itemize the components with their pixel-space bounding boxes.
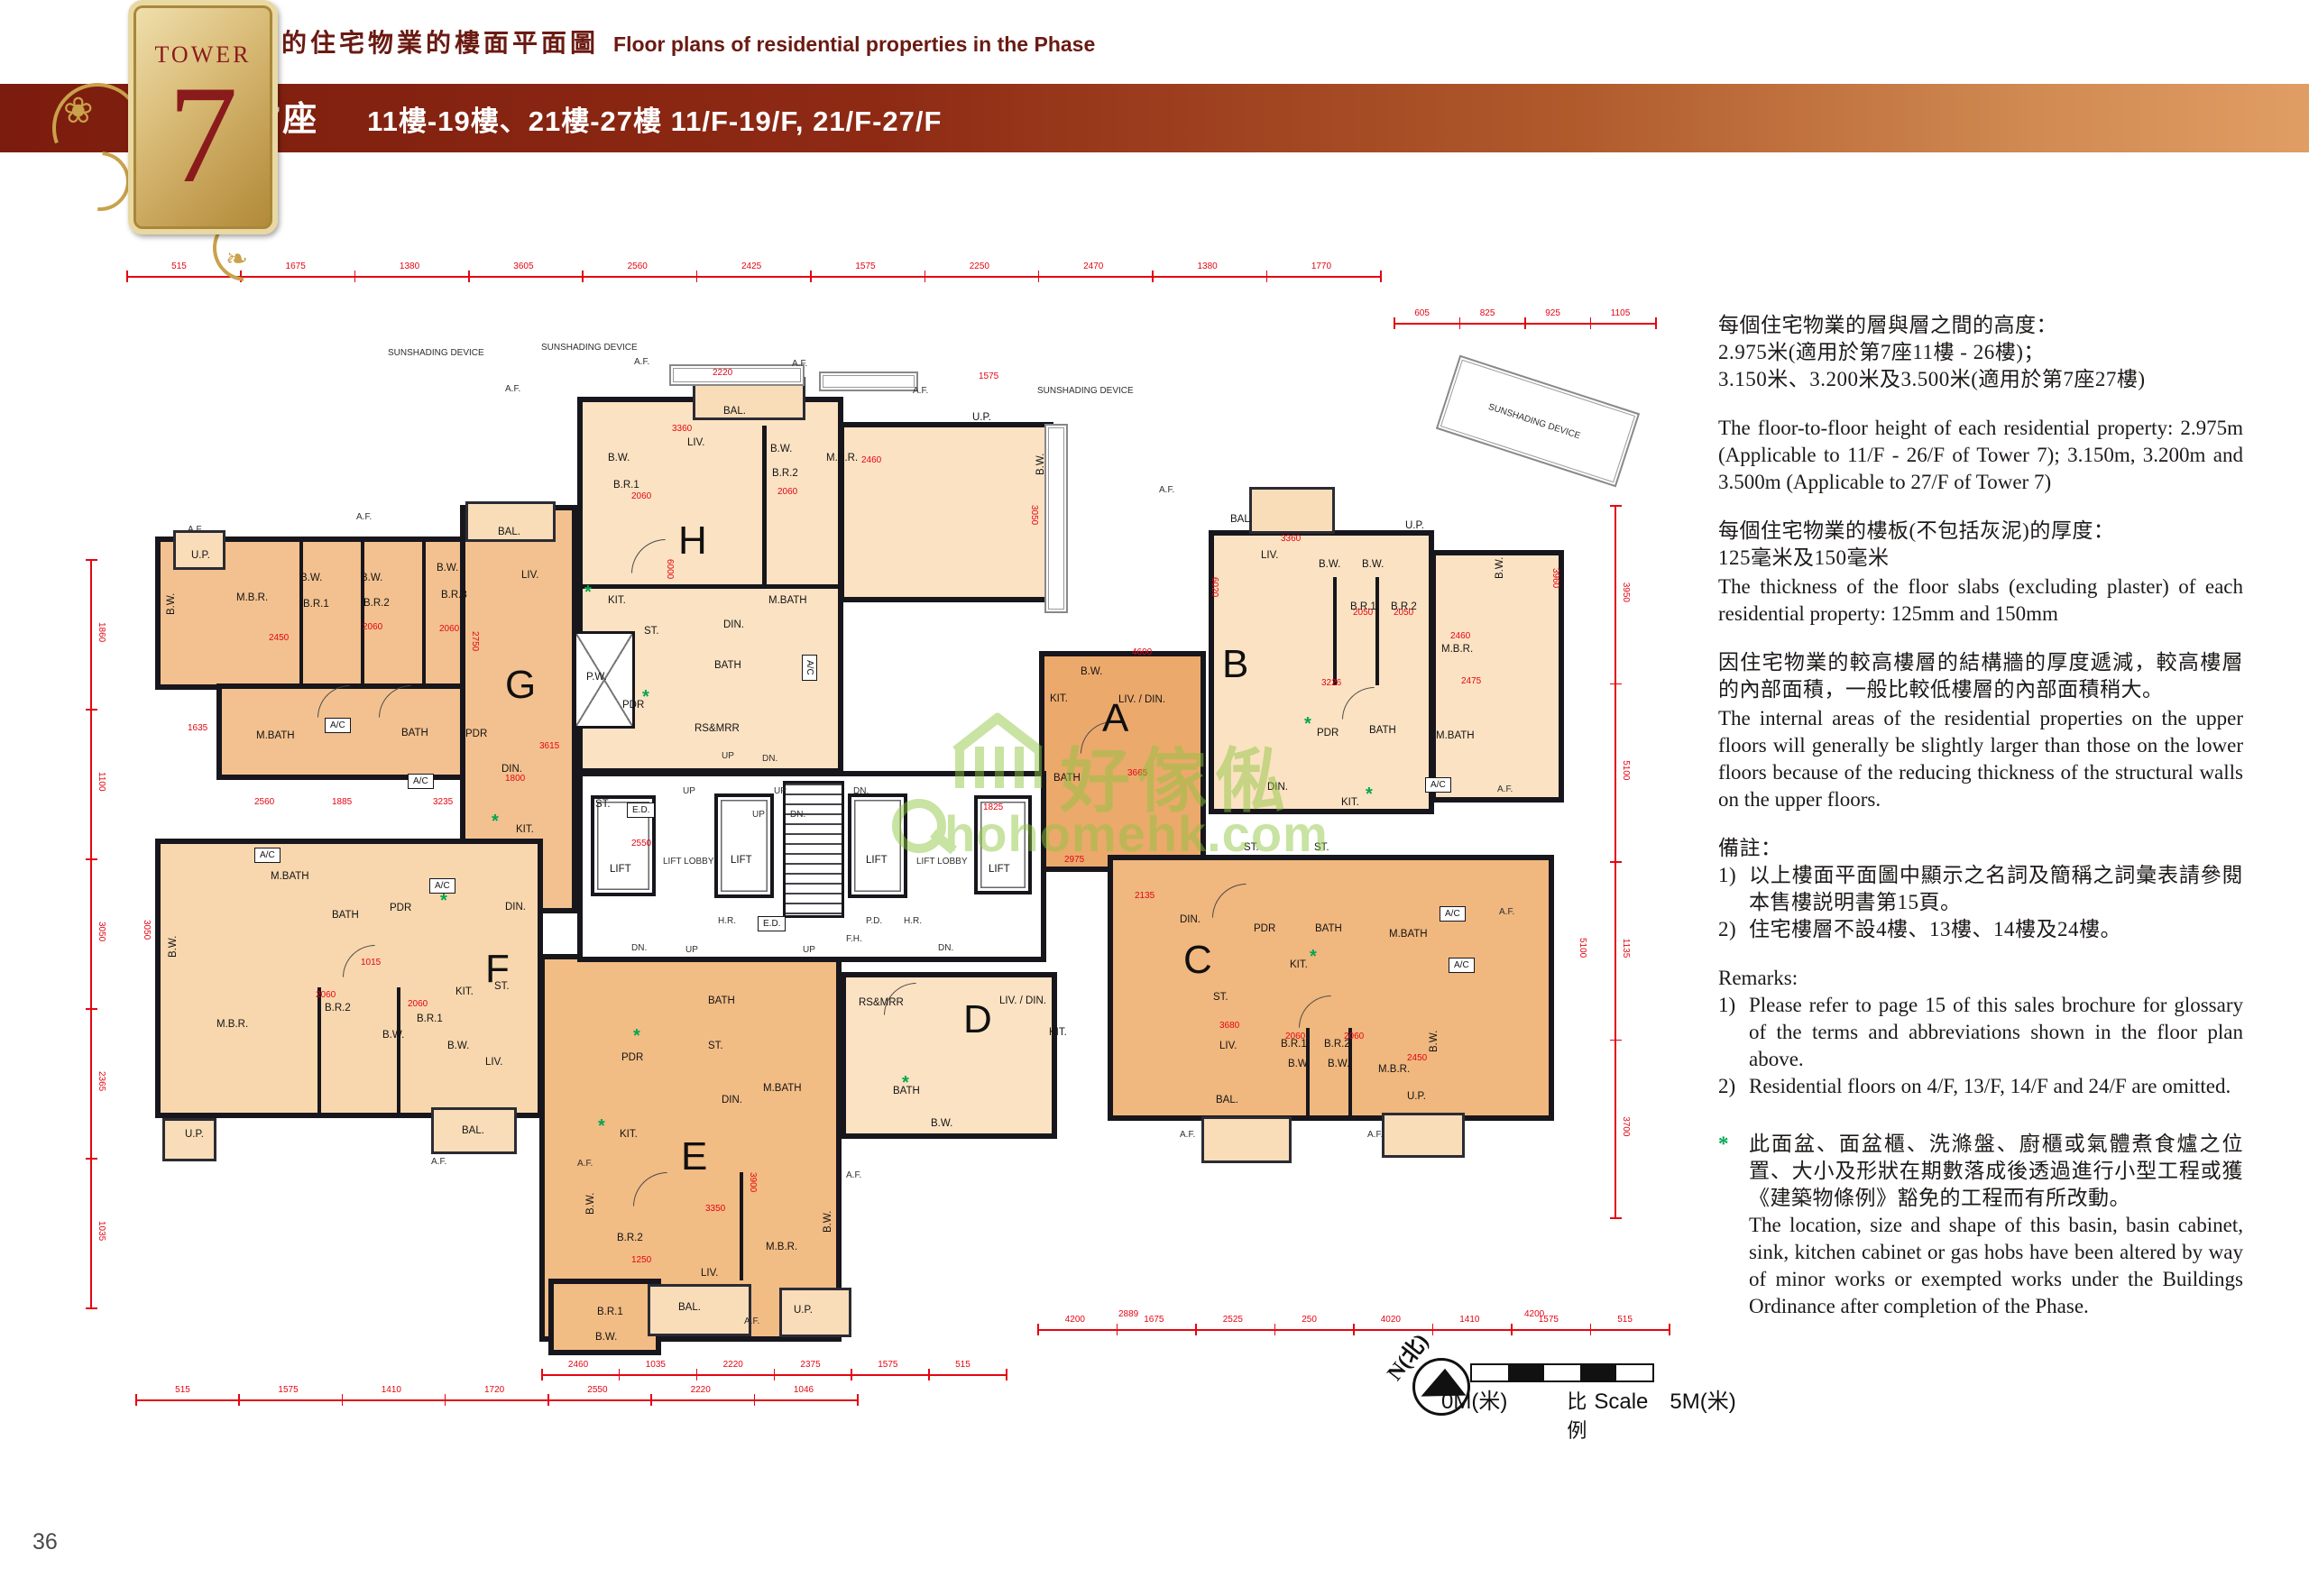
room-label: H.R. [904, 916, 922, 926]
dimension-tick [1524, 317, 1526, 329]
dimension-tick [1610, 505, 1622, 507]
room-label: A/C [1449, 958, 1475, 973]
room-label: M.B.R. [826, 453, 858, 463]
room-label: M.B.R. [1441, 644, 1473, 655]
dimension-label: 2060 [316, 990, 336, 1000]
tower-plaque: TOWER 7 [128, 0, 278, 234]
room-label: A/C [408, 774, 434, 789]
dimension-label: 3235 [433, 797, 453, 807]
room-label: B.W. [1495, 557, 1505, 579]
dimension-tick [857, 1394, 859, 1406]
dimension-label: 2889 [1118, 1309, 1138, 1319]
room-label: B.W. [168, 936, 179, 958]
room-label: P.D. [866, 916, 882, 926]
room-label: RS&MRR [695, 723, 740, 734]
room-label: E.D. [758, 916, 786, 931]
dimension-label: 6020 [1210, 577, 1219, 597]
remark-number: 2) [1718, 916, 1749, 943]
room-label: LIV. [687, 437, 704, 448]
dimension-value: 2560 [628, 261, 648, 271]
page-title: 期數的住宅物業的樓面平面圖 Floor plans of residential… [224, 23, 1095, 60]
room-label: DN. [631, 943, 647, 953]
dimension-tick [1006, 1369, 1007, 1380]
alteration-asterisk: * [598, 1116, 605, 1137]
room-label: PDR [622, 700, 644, 711]
dimension-value: 3950 [1621, 582, 1631, 602]
unit-letter-c: C [1183, 938, 1212, 983]
room-label: BATH [714, 660, 741, 671]
dimension-tick [86, 709, 97, 711]
dimension-value: 925 [1545, 308, 1560, 318]
floor-height-en: The floor-to-floor height of each reside… [1718, 415, 2243, 496]
dimension-label: 1575 [979, 371, 998, 381]
dimension-value: 2220 [691, 1385, 711, 1395]
scale-segment [1580, 1365, 1616, 1380]
room-label: BAL. [678, 1302, 701, 1313]
room-label: B.W. [300, 573, 322, 583]
room-label: A.F. [1159, 485, 1174, 495]
room-label: BATH [332, 910, 359, 921]
room-label: A.F. [792, 359, 807, 369]
dimension-tick [86, 1307, 97, 1309]
unit-letter-e: E [681, 1134, 707, 1179]
room-label: PDR [465, 729, 487, 739]
dimension-label: 1800 [505, 774, 525, 784]
dimension-tick [86, 1158, 97, 1160]
scale-labels: 0M(米) 比例 Scale 5M(米) [1441, 1383, 1703, 1444]
room-label: RS&MRR [859, 997, 904, 1008]
alteration-asterisk: * [1304, 714, 1311, 735]
room-label: M.BATH [1436, 730, 1475, 741]
dimension-value: 4020 [1381, 1315, 1401, 1325]
dimension-value: 1575 [278, 1385, 298, 1395]
room-label: M.B.R. [1378, 1064, 1410, 1075]
room-label: A.F. [913, 386, 928, 396]
alteration-asterisk: * [633, 1026, 640, 1047]
scale-bar [1470, 1363, 1654, 1382]
dimension-tick [1274, 1324, 1276, 1335]
dimension-tick [541, 1369, 543, 1380]
room-label: LIV. [1261, 550, 1278, 561]
dimension-label: 5100 [1578, 938, 1587, 958]
room-label: LIFT [866, 855, 888, 866]
dimension-tick [135, 1394, 137, 1406]
dimension-chain: 5151675138036052560242515752250247013801… [126, 267, 1380, 283]
room-label: ST. [1213, 992, 1228, 1003]
remark-number: 1) [1718, 992, 1749, 1073]
dimension-label: 3360 [1281, 534, 1301, 544]
dimension-tick [342, 1394, 344, 1406]
dimension-tick [619, 1369, 621, 1380]
room-label: F.H. [846, 934, 862, 944]
dimension-tick [1610, 683, 1622, 685]
room-label: A.F. [1180, 1130, 1195, 1140]
room-label: PDR [1254, 923, 1275, 934]
sunshading-device-outline [819, 371, 918, 391]
dimension-value: 1575 [1539, 1315, 1559, 1325]
scale-label-en: Scale [1594, 1390, 1648, 1415]
room-label: DN. [762, 754, 777, 764]
unit-b-balcony [1249, 487, 1335, 534]
unit-letter-g: G [505, 663, 536, 708]
dimension-line [91, 559, 93, 1307]
dimension-label: 2560 [254, 797, 274, 807]
room-label: A.F. [577, 1159, 593, 1169]
dimension-label: 2135 [1135, 891, 1154, 901]
dimension-tick [1511, 1324, 1513, 1335]
dimension-value: 2220 [723, 1360, 743, 1370]
basin-note-zh: * 此面盆、面盆櫃、洗滌盤、廚櫃或氣體煮食爐之位置、大小及形狀在期數落成後透過進… [1718, 1131, 2243, 1212]
room-label: ST. [1314, 842, 1329, 853]
room-label: U.P. [185, 1129, 204, 1140]
room-label: A.F. [1497, 784, 1513, 794]
dimension-line [135, 1399, 857, 1401]
remark-text: 住宅樓層不設4樓、13樓、14樓及24樓。 [1749, 916, 2243, 943]
remark-number: 2) [1718, 1073, 1749, 1100]
room-label: A.F. [846, 1170, 861, 1180]
dimension-label: 3360 [672, 424, 692, 434]
room-label: BAL. [462, 1125, 484, 1136]
dimension-tick [445, 1394, 446, 1406]
room-label: LIV. [701, 1268, 718, 1279]
house-icon [992, 712, 1043, 755]
dimension-label: 3680 [1219, 1021, 1239, 1031]
unit-c-area [1108, 855, 1554, 1121]
unit-e-utility-platform [779, 1288, 851, 1337]
room-label: B.W. [931, 1118, 952, 1129]
remark-text: Residential floors on 4/F, 13/F, 14/F an… [1749, 1073, 2243, 1100]
dimension-tick [851, 1369, 852, 1380]
dimension-tick [86, 858, 97, 860]
room-label: SUNSHADING DEVICE [388, 348, 484, 358]
room-label: A.F. [188, 525, 203, 535]
room-label: DN. [790, 810, 805, 820]
dimension-tick [468, 271, 470, 282]
room-label: UP [685, 945, 698, 955]
wall [1375, 577, 1379, 685]
dimension-value: 250 [1302, 1315, 1317, 1325]
dimension-label: 1635 [188, 723, 207, 733]
room-label: BATH [1053, 773, 1081, 784]
room-label: B.W. [585, 1193, 596, 1215]
dimension-label: 2550 [631, 839, 651, 848]
unit-letter-d: D [963, 997, 992, 1042]
room-label: PDR [390, 903, 411, 913]
dimension-value: 2375 [800, 1360, 820, 1370]
dimension-chain: 24601035222023751575515 [541, 1365, 1006, 1381]
room-label: ST. [644, 626, 659, 637]
wall [583, 584, 842, 589]
dimension-tick [1459, 317, 1461, 329]
dimension-label: 6000 [665, 559, 675, 579]
room-label: BAL. [723, 406, 746, 417]
remark-en-item: 2) Residential floors on 4/F, 13/F, 14/F… [1718, 1073, 2243, 1100]
alteration-asterisk: * [1310, 947, 1317, 968]
room-label: LIV. [485, 1057, 502, 1068]
dimension-value: 515 [1617, 1315, 1633, 1325]
room-label: DIN. [722, 1095, 742, 1105]
room-label: B.W. [1288, 1059, 1310, 1069]
dimension-label: 3900 [748, 1172, 758, 1192]
room-label: UP [803, 945, 815, 955]
flower-icon: ❀ [63, 90, 94, 132]
floor-height-zh: 2.975米(適用於第7座11樓 - 26樓)； [1718, 339, 2243, 366]
dimension-tick [1038, 271, 1040, 282]
dimension-tick [1380, 271, 1382, 282]
room-label: M.BATH [768, 595, 807, 606]
room-label: B.W. [1429, 1031, 1440, 1052]
floor-height-zh: 3.150米、3.200米及3.500米(適用於第7座27樓) [1718, 366, 2243, 393]
room-label: E.D. [627, 803, 655, 818]
dimension-label: 1885 [332, 797, 352, 807]
room-label: U.P. [972, 412, 991, 423]
room-label: P.W. [586, 672, 607, 683]
room-label: B.W. [1081, 666, 1102, 677]
dimension-label: 2475 [1461, 676, 1481, 686]
dimension-chain: 420016752525250402014101575515 [1037, 1320, 1669, 1336]
room-label: DIN. [723, 619, 744, 630]
dimension-label: 2460 [861, 455, 881, 465]
room-label: DN. [853, 786, 869, 796]
room-label: DIN. [1180, 914, 1200, 925]
dimension-chain: 6058259251105 [1394, 314, 1655, 330]
room-label: A/C [325, 718, 351, 733]
dimension-tick [238, 1394, 240, 1406]
unit-f-utility-platform [162, 1118, 216, 1161]
alteration-asterisk: * [902, 1073, 909, 1094]
dimension-label: 1825 [983, 803, 1003, 812]
basin-note-zh-text: 此面盆、面盆櫃、洗滌盤、廚櫃或氣體煮食爐之位置、大小及形狀在期數落成後透過進行小… [1749, 1131, 2243, 1212]
dimension-tick [1266, 271, 1268, 282]
dimension-value: 515 [955, 1360, 971, 1370]
internal-area-zh: 因住宅物業的較高樓層的結構牆的厚度遞減，較高樓層的內部面積，一般比較低樓層的內部… [1718, 649, 2243, 703]
room-label: B.W. [447, 1041, 469, 1051]
lift-shaft [714, 793, 774, 898]
page-number: 36 [32, 1529, 58, 1555]
remark-text: Please refer to page 15 of this sales br… [1749, 992, 2243, 1073]
room-label: B.W. [1319, 559, 1340, 570]
room-label: KIT. [1290, 959, 1308, 970]
dimension-label: 4600 [1132, 647, 1152, 657]
room-label: M.BATH [1389, 929, 1428, 940]
slab-thickness-en: The thickness of the floor slabs (exclud… [1718, 573, 2243, 628]
dimension-value: 2550 [587, 1385, 607, 1395]
unit-c-balcony [1201, 1116, 1292, 1163]
dimension-label: 1250 [631, 1255, 651, 1265]
room-label: KIT. [1049, 1027, 1067, 1038]
dimension-value: 1100 [97, 772, 106, 792]
dimension-tick [1655, 317, 1657, 329]
alteration-asterisk: * [584, 582, 592, 603]
room-label: B.R.2 [363, 598, 390, 609]
dimension-tick [1590, 1324, 1592, 1335]
room-label: KIT. [1341, 797, 1359, 808]
dimension-value: 2425 [741, 261, 761, 271]
dimension-value: 3050 [97, 922, 106, 941]
dimension-chain: 515157514101720255022201046 [135, 1390, 857, 1407]
room-label: LIV. [521, 570, 538, 581]
dimension-value: 3605 [513, 261, 533, 271]
room-label: A.F. [1367, 1130, 1383, 1140]
room-label: A.F. [744, 1316, 759, 1326]
lift-shaft [848, 793, 907, 898]
dimension-tick [354, 271, 356, 282]
wall [397, 987, 400, 1114]
scale-segment [1508, 1365, 1544, 1380]
room-label: H.R. [718, 916, 736, 926]
wall [740, 1172, 743, 1280]
room-label: B.W. [608, 453, 630, 463]
room-label: B.W. [382, 1030, 404, 1041]
room-label: A.F. [634, 357, 649, 367]
alteration-asterisk: * [1366, 784, 1373, 805]
room-label: BATH [708, 995, 735, 1006]
unit-c-utility-platform [1382, 1113, 1465, 1158]
room-label: M.BATH [256, 730, 295, 741]
dimension-value: 2470 [1083, 261, 1103, 271]
dimension-tick [774, 1369, 776, 1380]
wall [299, 541, 303, 683]
room-label: B.W. [437, 563, 458, 573]
wall [422, 541, 426, 683]
dimension-tick [754, 1394, 756, 1406]
dimension-label: 3050 [1029, 505, 1039, 525]
dimension-value: 1105 [1611, 308, 1631, 318]
tower-number: 7 [133, 58, 272, 212]
unit-h-area [839, 422, 1053, 602]
dimension-value: 1860 [97, 622, 106, 642]
room-label: B.R.2 [617, 1233, 643, 1243]
room-label: UP [683, 786, 695, 796]
dimension-chain: 3950510011353700 [1609, 505, 1625, 1217]
remarks-en-title: Remarks: [1718, 965, 2243, 992]
room-label: B.R.2 [1324, 1039, 1350, 1050]
wall [361, 541, 364, 683]
dimension-value: 1135 [1621, 939, 1631, 959]
room-label: ST. [708, 1041, 723, 1051]
room-label: LIFT [610, 864, 631, 875]
dimension-chain: 18601100305023651035 [85, 559, 101, 1307]
wall [317, 987, 321, 1114]
room-label: LIFT [989, 864, 1010, 875]
room-label: B.R.1 [417, 1014, 443, 1024]
dimension-label: 3665 [1127, 768, 1147, 778]
room-label: DIN. [505, 902, 526, 913]
dimension-value: 1770 [1311, 261, 1331, 271]
scale-segment [1544, 1365, 1580, 1380]
page-title-en: Floor plans of residential properties in… [613, 32, 1095, 57]
room-label: B.R.2 [1391, 601, 1417, 612]
dimension-label: 2450 [1407, 1053, 1427, 1063]
room-label: PDR [621, 1052, 643, 1063]
leaf-icon: ❧ [225, 243, 248, 275]
dimension-label: 2060 [777, 487, 797, 497]
house-icon [952, 712, 1003, 755]
sunshading-device-outline [1044, 424, 1068, 613]
room-label: SUNSHADING DEVICE [1037, 386, 1134, 396]
room-label: BAL. [1216, 1095, 1238, 1105]
room-label: LIFT LOBBY [916, 857, 968, 867]
basin-note-en: The location, size and shape of this bas… [1718, 1212, 2243, 1320]
unit-letter-h: H [678, 518, 707, 564]
unit-letter-b: B [1222, 642, 1248, 687]
room-label: BAL. [498, 527, 520, 537]
remark-text: 以上樓面平面圖中顯示之名詞及簡稱之詞彙表請參閱本售樓説明書第15頁。 [1749, 862, 2243, 916]
dimension-value: 1035 [646, 1360, 666, 1370]
remarks-zh-title: 備註： [1718, 835, 2243, 862]
dimension-tick [650, 1394, 652, 1406]
room-label: ST. [494, 981, 510, 992]
dimension-label: 2460 [1450, 631, 1470, 641]
basin-note-en-text: The location, size and shape of this bas… [1749, 1212, 2243, 1320]
room-label: B.W. [166, 593, 177, 615]
dimension-value: 1410 [1459, 1315, 1479, 1325]
scale-zero-label: 0M(米) [1441, 1383, 1507, 1415]
room-label: BATH [1369, 725, 1396, 736]
dimension-line [126, 276, 1380, 278]
dimension-value: 3700 [1621, 1116, 1631, 1136]
dimension-label: 2060 [363, 622, 382, 632]
unit-b-area [1430, 550, 1564, 803]
room-label: LIV. [1219, 1041, 1237, 1051]
room-label: B.R.1 [1350, 601, 1376, 612]
tower-badge: ❀ ❀ ❧ TOWER 7 [0, 0, 307, 289]
wall [1333, 577, 1337, 685]
internal-area-en: The internal areas of the residential pr… [1718, 705, 2243, 813]
room-label: A/C [802, 655, 817, 681]
dimension-value: 1380 [400, 261, 419, 271]
dimension-tick [86, 559, 97, 561]
dimension-label: 2220 [713, 368, 732, 378]
dimension-label: 3226 [1321, 678, 1341, 688]
dimension-value: 1380 [1197, 261, 1217, 271]
dimension-value: 825 [1480, 308, 1495, 318]
room-label: DN. [938, 943, 953, 953]
remark-number: 1) [1718, 862, 1749, 916]
room-label: DIN. [501, 764, 522, 775]
room-label: DIN. [1267, 782, 1288, 793]
room-label: U.P. [1405, 520, 1424, 531]
dimension-label: 2060 [631, 491, 651, 501]
room-label: M.B.R. [216, 1019, 248, 1030]
dimension-value: 2460 [568, 1360, 588, 1370]
dimension-value: 1046 [794, 1385, 814, 1395]
sunshading-device-outline [669, 364, 805, 386]
room-label: B.W. [1362, 559, 1384, 570]
room-label: KIT. [455, 986, 474, 997]
room-label: BAL. [1230, 514, 1253, 525]
tower-banner: 第7座 11樓-19樓、21樓-27樓 11/F-19/F, 21/F-27/F [0, 84, 2309, 152]
room-label: B.W. [361, 573, 382, 583]
dimension-tick [1669, 1324, 1670, 1335]
room-label: UP [752, 810, 765, 820]
room-label: KIT. [516, 824, 534, 835]
scale-label-zh: 比例 [1567, 1386, 1587, 1444]
dimension-value: 1035 [97, 1221, 106, 1241]
room-label: SUNSHADING DEVICE [541, 343, 638, 353]
room-label: LIV. / DIN. [999, 995, 1046, 1006]
dimension-label: 3350 [705, 1204, 725, 1214]
dimension-tick [1195, 1324, 1197, 1335]
room-label: BATH [401, 728, 428, 738]
room-label: BATH [1315, 923, 1342, 934]
wall [762, 426, 767, 586]
banner-text: 第7座 11樓-19樓、21樓-27樓 11/F-19/F, 21/F-27/F [225, 91, 942, 141]
dimension-value: 1410 [382, 1385, 401, 1395]
dimension-tick [810, 271, 812, 282]
dimension-label: 2060 [439, 624, 459, 634]
slab-thickness-zh: 每個住宅物業的樓板(不包括灰泥)的厚度： [1718, 518, 2243, 545]
